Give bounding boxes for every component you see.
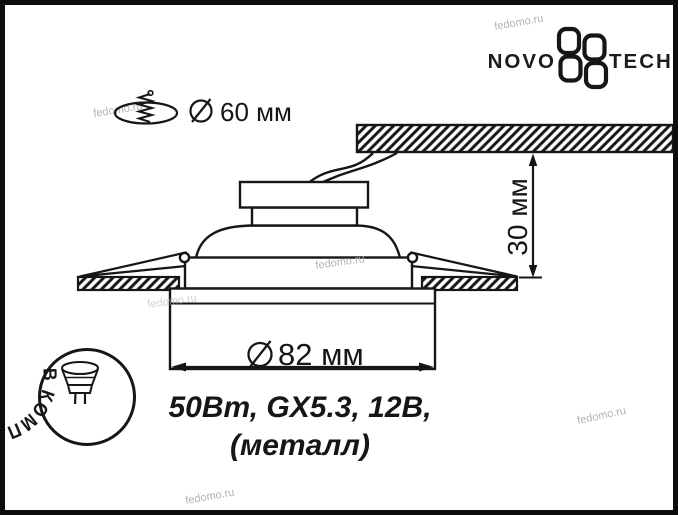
lamp-housing: [196, 226, 400, 259]
diagram-canvas: fedomo.ru 60 мм: [0, 0, 678, 515]
ceiling-cut-right: [422, 277, 517, 290]
outer-diameter-label: 82 мм: [278, 337, 364, 372]
ceiling-section: [357, 125, 673, 152]
recess-depth-label: 30 мм: [502, 178, 533, 255]
spec-line2: (металл): [230, 429, 370, 462]
clip-pivot-right: [408, 253, 417, 262]
product-dimension-diagram: fedomo.ru 60 мм: [0, 0, 678, 515]
ceiling-cut-left: [78, 277, 179, 290]
housing-neck: [252, 208, 357, 226]
junction-box: [240, 182, 368, 208]
brand-text-right: TECH: [609, 50, 673, 73]
cutout-diameter-label: 60 мм: [220, 97, 292, 127]
mounting-flange: [185, 258, 412, 289]
clip-pivot-left: [180, 253, 189, 262]
spec-line1: 50Вт, GX5.3, 12В,: [168, 391, 431, 424]
brand-text-left: NOVO: [488, 50, 556, 73]
